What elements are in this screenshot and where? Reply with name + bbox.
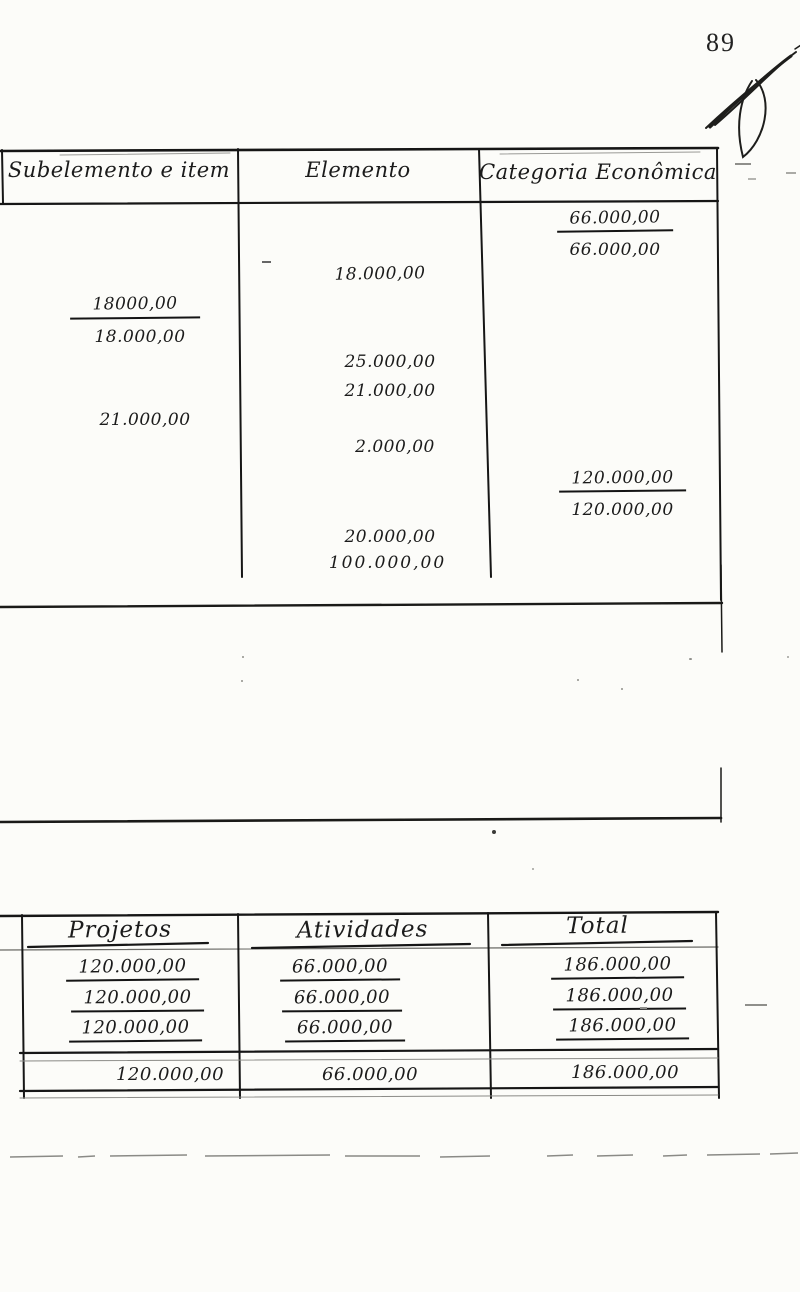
value-categoria-2-underlined: 120.000,00 (535, 467, 710, 493)
value-elemento-5: 20.000,00 (320, 527, 460, 547)
main-table-header-categoria: Categoria Econômica (478, 160, 718, 184)
main-table-header-subelemento: Subelemento e item (0, 158, 238, 182)
separator-lines (0, 565, 722, 822)
noise-dot (689, 658, 692, 660)
value-text: 120.000,00 (71, 987, 203, 1013)
summary-header-total: Total (505, 912, 690, 940)
summary-grand-total-projetos: 120.000,00 (90, 1064, 250, 1085)
value-text: 66.000,00 (557, 207, 672, 233)
value-elemento-6: 100.000,00 (305, 553, 470, 573)
value-categoria-1-underlined: 66.000,00 (530, 207, 700, 233)
noise-dash (748, 178, 756, 180)
ruling-lines (0, 0, 800, 1292)
noise-dot (242, 656, 244, 658)
noise-dash (786, 172, 796, 174)
value-subelemento-1-underlined: 18000,00 (40, 293, 230, 320)
noise-dot (241, 680, 243, 682)
noise-dot (492, 830, 496, 834)
summary-row-projetos: 120.000,00 (48, 1016, 223, 1043)
main-table-header-elemento: Elemento (238, 158, 478, 182)
value-elemento-1: 18.000,00 (300, 263, 460, 286)
signature-flourish (706, 43, 800, 157)
noise-dash (745, 1004, 767, 1006)
value-categoria-1-total: 66.000,00 (535, 240, 695, 260)
value-subelemento-1-total: 18.000,00 (60, 327, 220, 347)
scanned-ledger-page: 89 Subelemento e item Elemento Categoria… (0, 0, 800, 1292)
summary-row-projetos: 120.000,00 (45, 955, 220, 982)
summary-row-total: 186.000,00 (535, 1014, 710, 1041)
value-text: 186.000,00 (553, 985, 685, 1011)
summary-row-total: 186.000,00 (532, 984, 707, 1010)
summary-row-atividades: 66.000,00 (265, 1016, 425, 1042)
summary-header-projetos: Projetos (30, 916, 210, 944)
value-text: 186.000,00 (556, 1014, 688, 1040)
noise-dot (621, 688, 623, 690)
noise-dot (577, 679, 579, 681)
value-elemento-3: 21.000,00 (315, 381, 465, 401)
noise-dash (262, 261, 271, 263)
summary-row-atividades: 66.000,00 (260, 955, 420, 982)
summary-row-total: 186.000,00 (530, 953, 705, 980)
noise-dot (787, 656, 789, 658)
summary-row-projetos: 120.000,00 (50, 986, 225, 1012)
noise-dash (640, 1007, 647, 1009)
value-elemento-4: 2.000,00 (330, 437, 460, 457)
noise-dash (735, 163, 751, 165)
summary-grand-total-total: 186.000,00 (540, 1062, 710, 1083)
value-text: 66.000,00 (280, 955, 400, 981)
value-text: 120.000,00 (66, 955, 198, 981)
page-number: 89 (706, 28, 776, 58)
value-subelemento-2: 21.000,00 (70, 410, 220, 430)
value-text: 66.000,00 (282, 987, 402, 1013)
noise-dot (532, 868, 534, 870)
value-text: 120.000,00 (559, 467, 686, 492)
value-elemento-2: 25.000,00 (315, 352, 465, 372)
value-text: 120.000,00 (69, 1016, 201, 1042)
value-text: 66.000,00 (285, 1016, 405, 1042)
summary-row-atividades: 66.000,00 (262, 986, 422, 1012)
dashed-footer-line (10, 1153, 798, 1157)
value-categoria-2-total: 120.000,00 (540, 500, 705, 520)
value-text: 18000,00 (70, 293, 199, 319)
value-text: 186.000,00 (551, 953, 683, 979)
summary-header-atividades: Atividades (255, 916, 470, 944)
summary-grand-total-atividades: 66.000,00 (295, 1064, 445, 1085)
